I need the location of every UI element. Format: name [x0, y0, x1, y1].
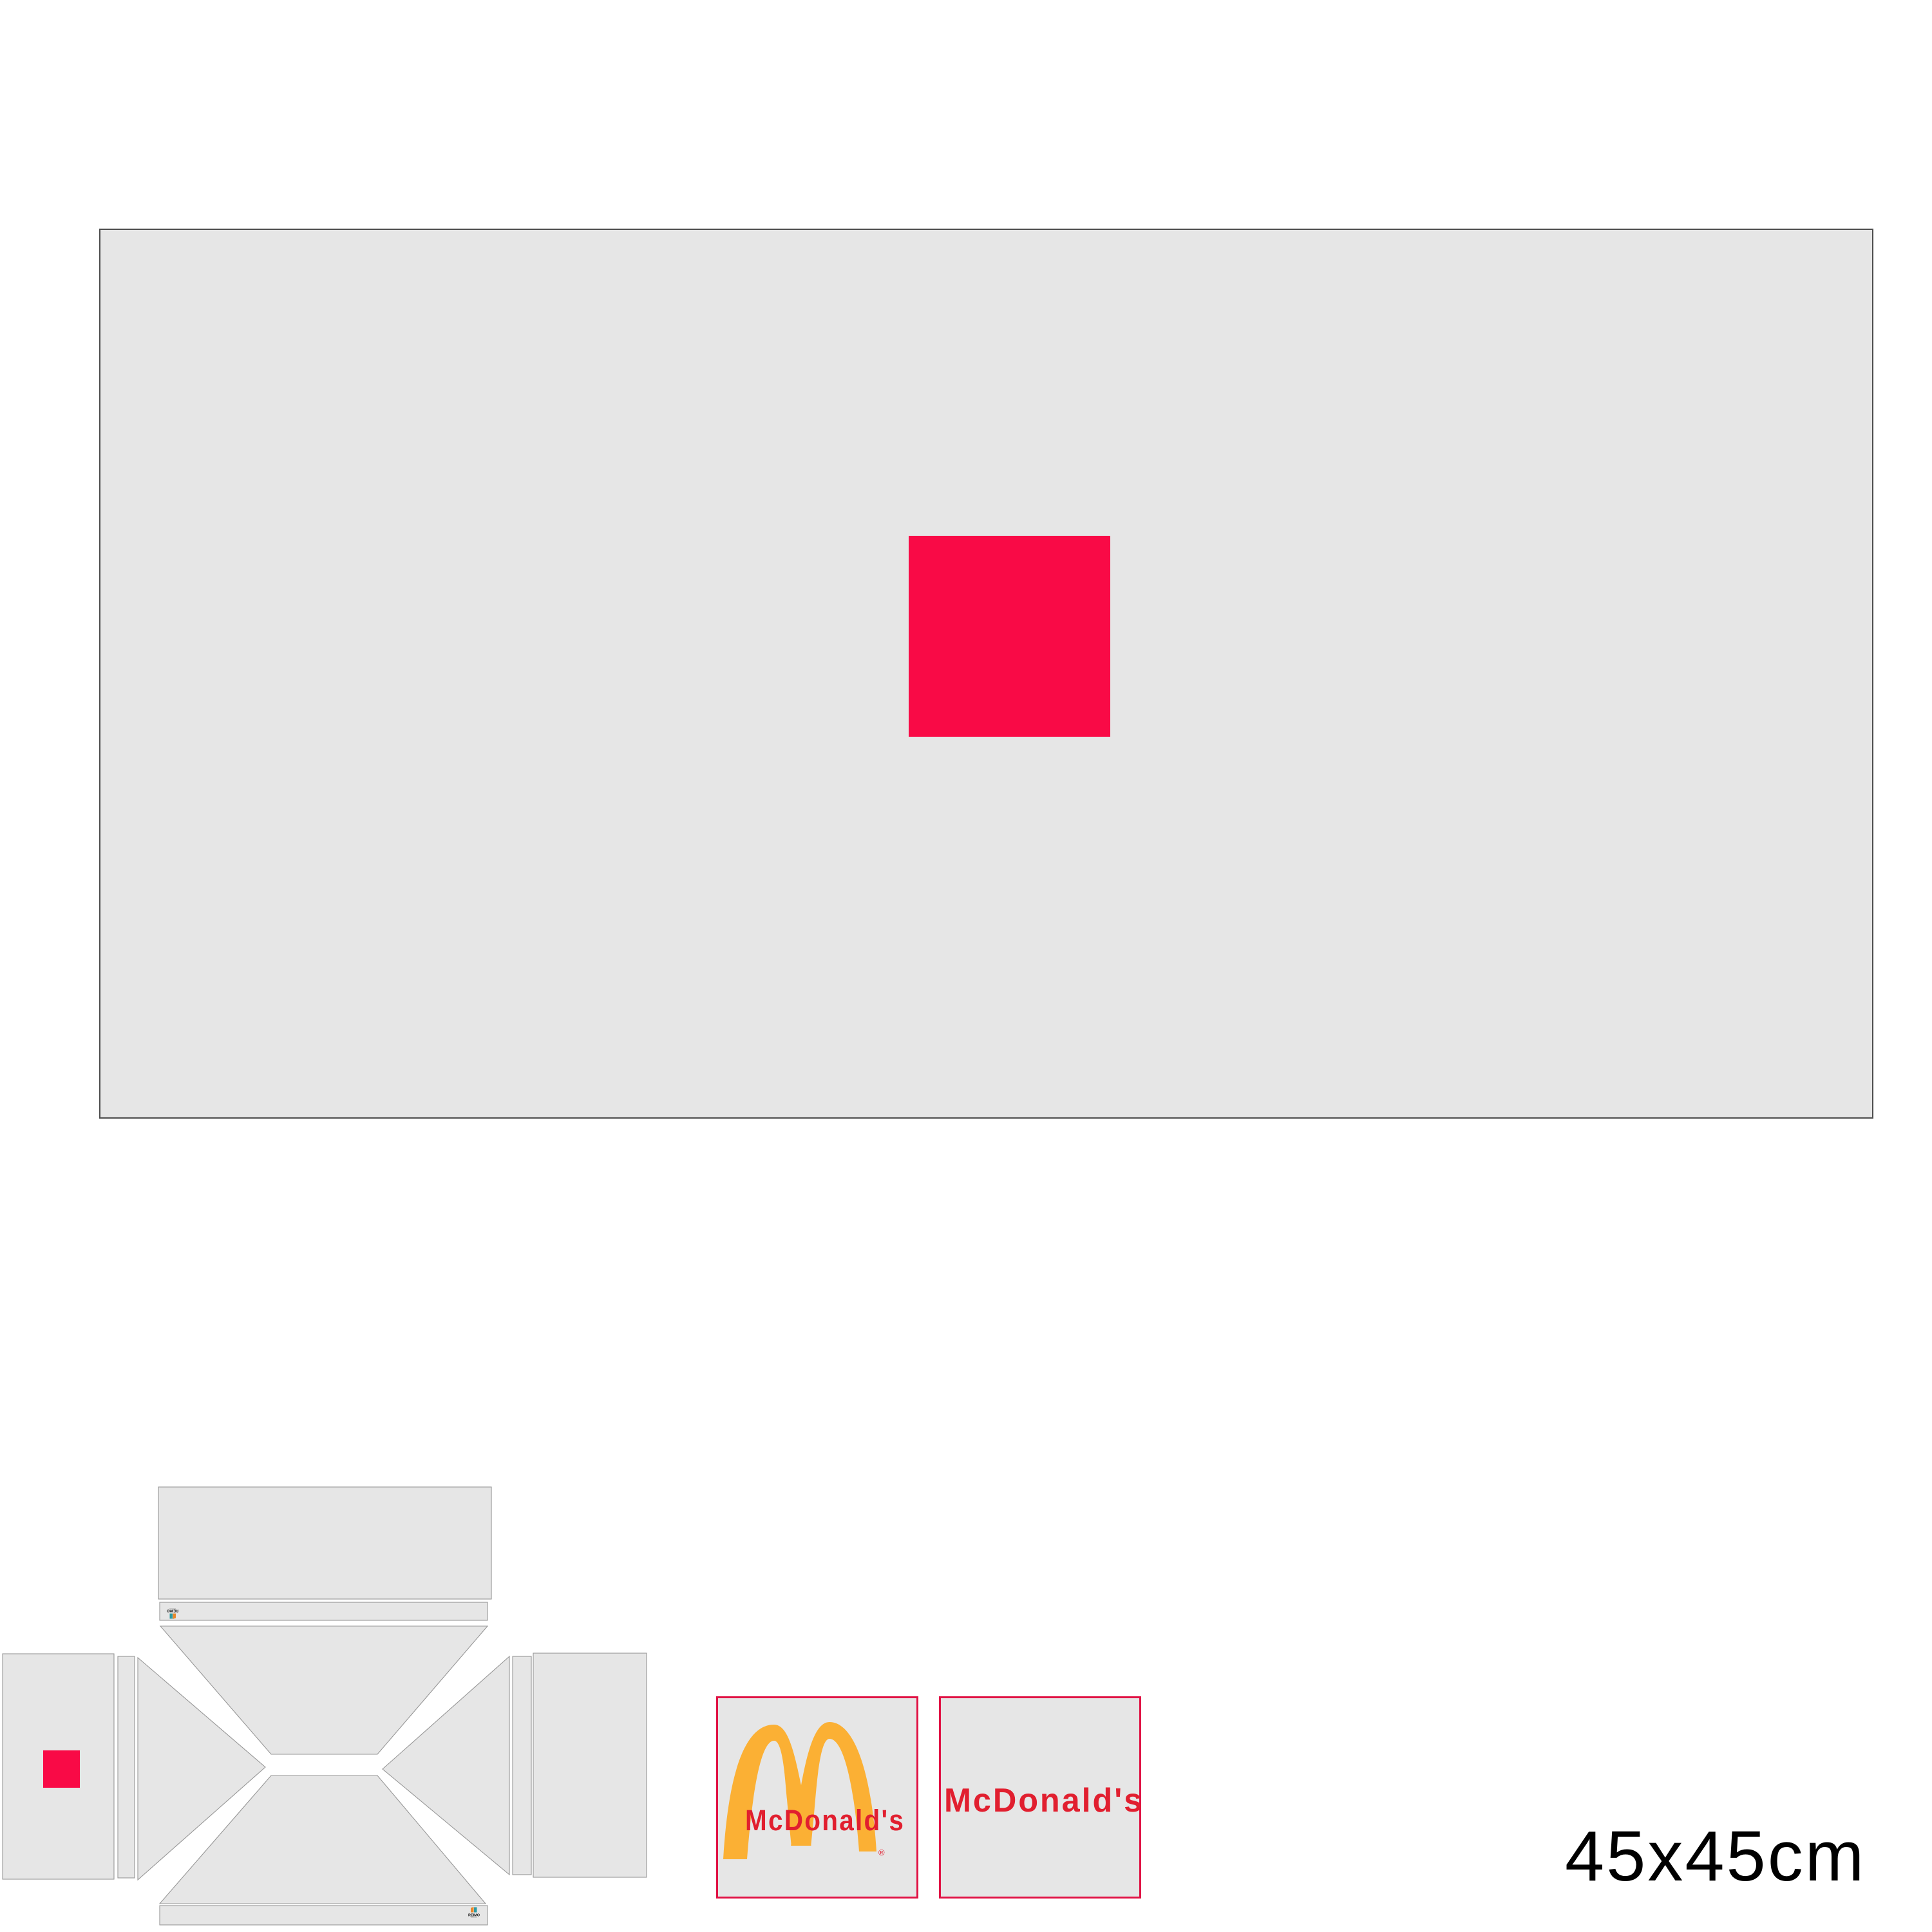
svg-text:McDonald's: McDonald's: [944, 1781, 1144, 1819]
svg-text:®: ®: [878, 1848, 885, 1857]
svg-text:45x45cm: 45x45cm: [1565, 1817, 1866, 1896]
svg-text:McDonald's: McDonald's: [745, 1804, 905, 1837]
